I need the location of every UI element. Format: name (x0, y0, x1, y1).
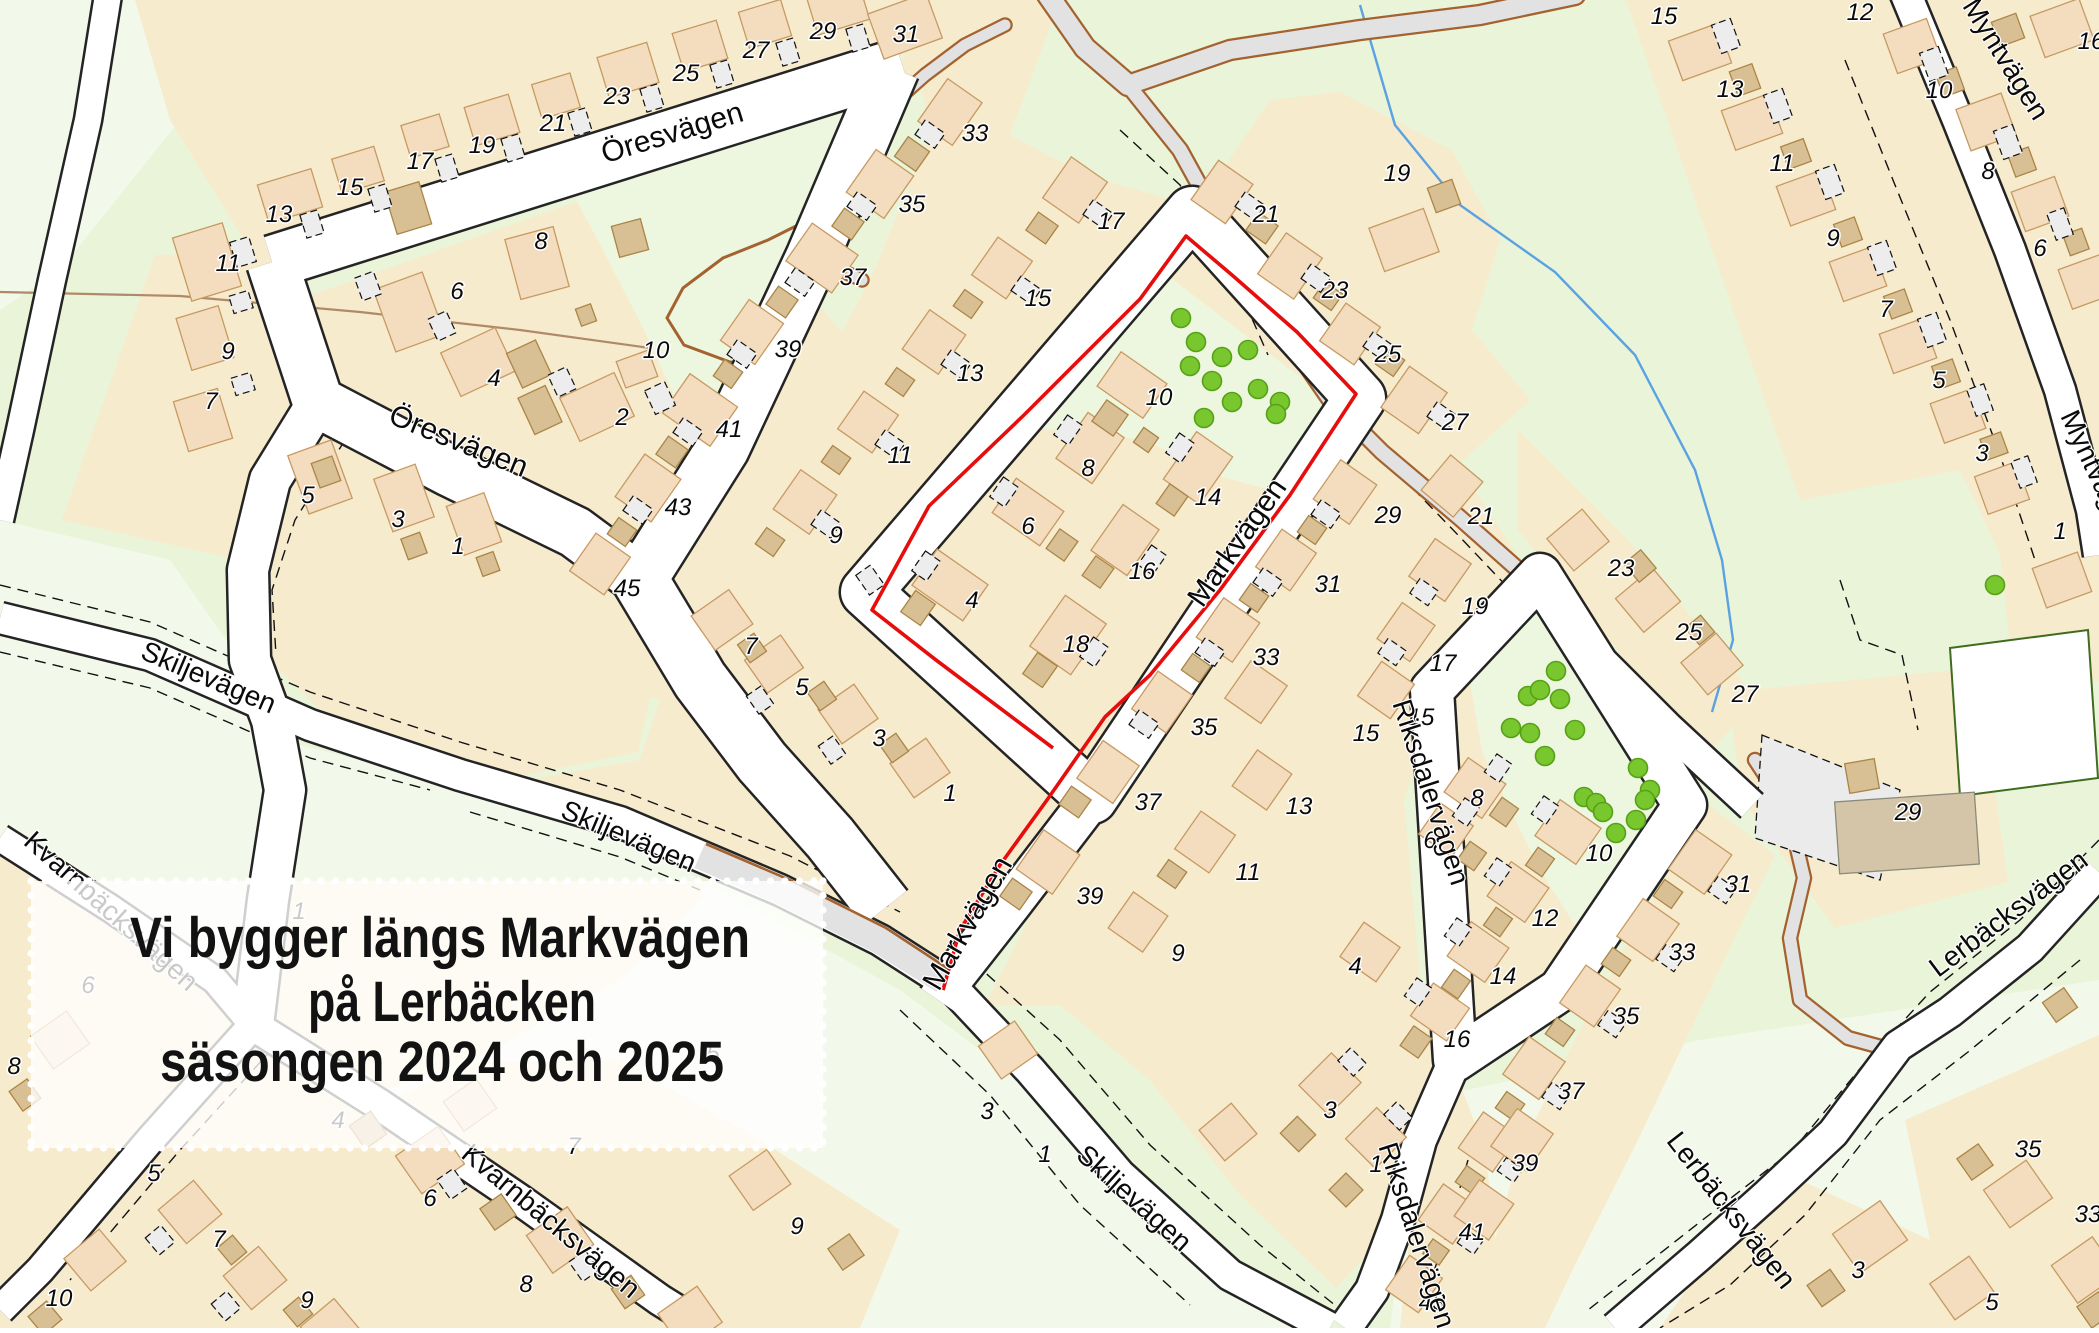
svg-text:19: 19 (469, 132, 496, 159)
svg-text:3: 3 (980, 1098, 994, 1125)
svg-text:31: 31 (1315, 571, 1342, 598)
svg-text:23: 23 (1607, 555, 1635, 582)
svg-text:25: 25 (672, 60, 700, 87)
svg-text:17: 17 (1098, 208, 1126, 235)
svg-text:39: 39 (1077, 883, 1104, 910)
svg-text:8: 8 (534, 228, 548, 255)
svg-text:11: 11 (1770, 150, 1795, 177)
svg-text:11: 11 (1236, 859, 1261, 886)
svg-text:45: 45 (614, 575, 641, 602)
svg-text:15: 15 (1651, 3, 1678, 30)
svg-text:3: 3 (391, 506, 405, 533)
svg-text:10: 10 (643, 337, 670, 364)
svg-text:8: 8 (7, 1053, 21, 1080)
svg-text:1: 1 (2053, 518, 2066, 545)
svg-text:33: 33 (2075, 1201, 2099, 1228)
svg-text:14: 14 (1490, 963, 1517, 990)
svg-text:21: 21 (539, 110, 567, 137)
svg-text:29: 29 (1894, 799, 1922, 826)
svg-text:19: 19 (1462, 593, 1489, 620)
svg-text:29: 29 (809, 18, 837, 45)
svg-text:13: 13 (1717, 76, 1744, 103)
svg-text:37: 37 (1135, 789, 1163, 816)
svg-text:39: 39 (1512, 1150, 1539, 1177)
svg-text:12: 12 (1532, 905, 1559, 932)
svg-text:23: 23 (1321, 277, 1349, 304)
svg-text:11: 11 (216, 250, 241, 277)
svg-text:31: 31 (893, 21, 920, 48)
svg-text:10: 10 (1926, 77, 1953, 104)
svg-text:4: 4 (1348, 953, 1361, 980)
svg-text:19: 19 (1384, 160, 1411, 187)
svg-text:3: 3 (1975, 440, 1989, 467)
svg-text:37: 37 (840, 264, 868, 291)
svg-text:31: 31 (1725, 871, 1752, 898)
svg-text:6: 6 (423, 1185, 437, 1212)
svg-text:2: 2 (614, 404, 628, 431)
svg-text:35: 35 (1191, 714, 1218, 741)
svg-text:41: 41 (1459, 1219, 1486, 1246)
svg-text:5: 5 (301, 482, 315, 509)
svg-text:35: 35 (2015, 1136, 2042, 1163)
svg-text:7: 7 (204, 388, 219, 415)
svg-text:35: 35 (1613, 1003, 1640, 1030)
svg-text:på Lerbäcken: på Lerbäcken (308, 970, 596, 1034)
svg-text:33: 33 (1669, 939, 1696, 966)
svg-text:3: 3 (1851, 1257, 1865, 1284)
svg-text:10: 10 (46, 1285, 73, 1312)
svg-text:27: 27 (1441, 409, 1470, 436)
svg-text:7: 7 (744, 633, 759, 660)
svg-text:16: 16 (2078, 28, 2099, 55)
svg-text:8: 8 (1981, 158, 1995, 185)
svg-text:27: 27 (1731, 681, 1760, 708)
svg-text:5: 5 (1985, 1289, 1999, 1316)
svg-text:37: 37 (1558, 1078, 1586, 1105)
svg-text:16: 16 (1129, 558, 1156, 585)
svg-text:5: 5 (1932, 367, 1946, 394)
svg-text:6: 6 (450, 278, 464, 305)
svg-text:4: 4 (487, 365, 500, 392)
svg-text:9: 9 (221, 338, 234, 365)
svg-text:1: 1 (1038, 1141, 1051, 1168)
svg-text:33: 33 (962, 120, 989, 147)
svg-text:43: 43 (665, 494, 692, 521)
svg-text:39: 39 (775, 336, 802, 363)
svg-text:7: 7 (212, 1226, 227, 1253)
svg-text:14: 14 (1195, 484, 1222, 511)
svg-text:17: 17 (407, 148, 435, 175)
svg-text:1: 1 (943, 780, 956, 807)
svg-text:9: 9 (1826, 225, 1839, 252)
svg-text:33: 33 (1253, 644, 1280, 671)
svg-text:4: 4 (965, 587, 978, 614)
svg-text:9: 9 (300, 1287, 313, 1314)
svg-text:8: 8 (1470, 785, 1484, 812)
svg-text:15: 15 (337, 174, 364, 201)
svg-text:3: 3 (1323, 1097, 1337, 1124)
svg-text:25: 25 (1675, 619, 1703, 646)
svg-text:35: 35 (899, 191, 926, 218)
svg-text:18: 18 (1063, 631, 1090, 658)
svg-text:1: 1 (451, 533, 464, 560)
svg-text:41: 41 (716, 416, 743, 443)
svg-text:13: 13 (957, 360, 984, 387)
svg-text:9: 9 (790, 1213, 803, 1240)
svg-text:5: 5 (795, 674, 809, 701)
svg-text:23: 23 (603, 83, 631, 110)
svg-text:15: 15 (1025, 285, 1052, 312)
svg-text:13: 13 (1286, 793, 1313, 820)
svg-text:9: 9 (829, 522, 842, 549)
svg-text:21: 21 (1467, 503, 1495, 530)
svg-text:7: 7 (1879, 296, 1894, 323)
svg-text:16: 16 (1444, 1026, 1471, 1053)
svg-text:25: 25 (1374, 341, 1402, 368)
svg-text:8: 8 (1081, 455, 1095, 482)
svg-text:8: 8 (519, 1271, 533, 1298)
svg-text:15: 15 (1353, 720, 1380, 747)
svg-text:säsongen 2024 och 2025: säsongen 2024 och 2025 (160, 1030, 724, 1094)
svg-text:21: 21 (1252, 201, 1280, 228)
svg-text:10: 10 (1586, 840, 1613, 867)
svg-text:12: 12 (1847, 0, 1874, 26)
svg-text:10: 10 (1146, 384, 1173, 411)
svg-text:13: 13 (266, 201, 293, 228)
svg-text:6: 6 (2033, 235, 2047, 262)
svg-text:11: 11 (888, 442, 913, 469)
svg-text:5: 5 (147, 1160, 161, 1187)
svg-text:3: 3 (872, 725, 886, 752)
svg-text:27: 27 (742, 37, 771, 64)
svg-text:6: 6 (1021, 513, 1035, 540)
svg-text:Vi bygger längs Markvägen: Vi bygger längs Markvägen (130, 906, 750, 970)
svg-text:17: 17 (1430, 650, 1458, 677)
svg-text:29: 29 (1374, 502, 1402, 529)
svg-text:9: 9 (1171, 940, 1184, 967)
